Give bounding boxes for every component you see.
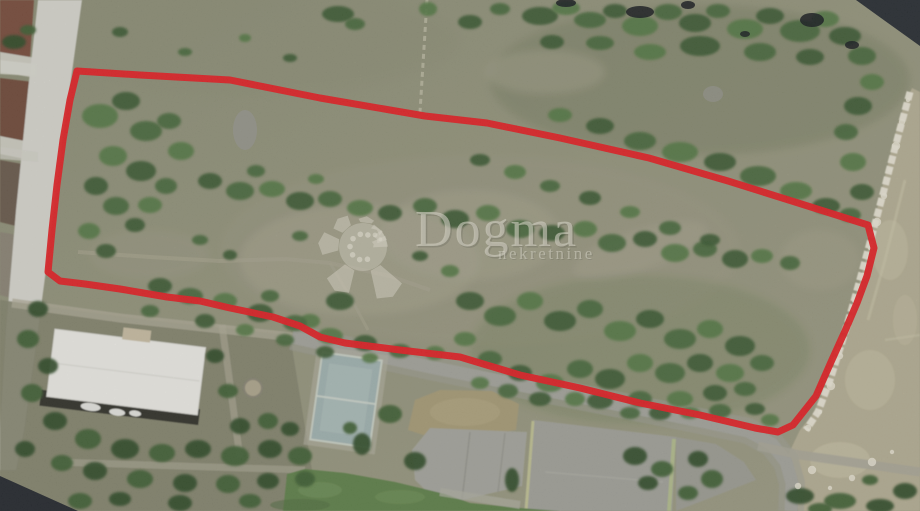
photo-grain-light bbox=[0, 0, 920, 511]
aerial-photo-canvas: Dogma Dogma nekretnine nekretnine bbox=[0, 0, 920, 511]
aerial-photo: Dogma Dogma nekretnine nekretnine bbox=[0, 0, 920, 511]
